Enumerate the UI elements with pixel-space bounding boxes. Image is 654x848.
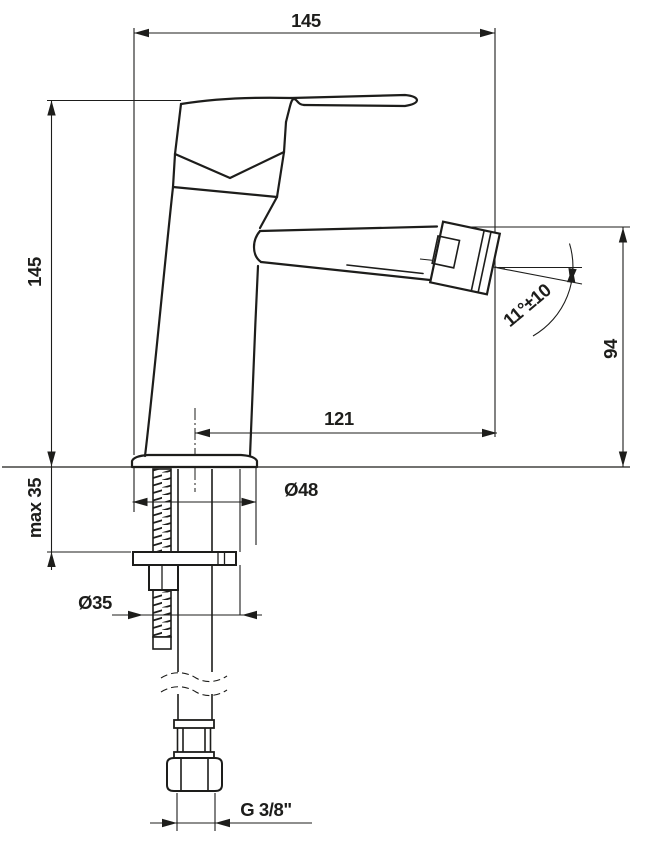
dim-connection-thread-label: G 3/8": [240, 799, 292, 820]
dim-spout-reach-label: 121: [324, 408, 354, 429]
dim-body-height: 145: [24, 101, 56, 467]
supply-tube: [178, 469, 212, 721]
aerator: [428, 221, 500, 294]
handle-lever: [181, 95, 417, 122]
extension-lines: [47, 28, 630, 831]
dim-max-deck-thickness-label: max 35: [24, 478, 45, 538]
faucet-body: [145, 95, 417, 456]
hose-connector: [174, 720, 214, 758]
faucet-technical-drawing: 145 145 max 35 121 94 11°±10: [0, 0, 654, 848]
dim-overall-length-label: 145: [291, 10, 321, 31]
dim-hole-diameter-label: Ø35: [78, 592, 112, 613]
dim-spout-angle-label: 11°±10: [499, 279, 555, 331]
dim-spout-reach: 121: [195, 408, 497, 437]
spout: [254, 227, 437, 281]
mounting-washer: [133, 552, 236, 565]
hex-nut: [167, 758, 222, 791]
pipe-break-lines: [161, 673, 227, 696]
dim-max-deck-thickness: max 35: [24, 467, 56, 571]
dim-connection-thread: G 3/8": [150, 799, 312, 827]
dim-spout-angle: 11°±10: [493, 244, 582, 337]
dim-overall-length: 145: [134, 10, 495, 37]
dim-spout-height: 94: [600, 228, 627, 467]
mounting-nut: [149, 565, 178, 590]
dim-base-diameter-label: Ø48: [284, 479, 318, 500]
drawing-sheet: 145 145 max 35 121 94 11°±10: [0, 0, 654, 848]
dim-body-height-label: 145: [24, 257, 45, 287]
dim-spout-height-label: 94: [600, 338, 621, 359]
base-plate: [132, 455, 257, 467]
